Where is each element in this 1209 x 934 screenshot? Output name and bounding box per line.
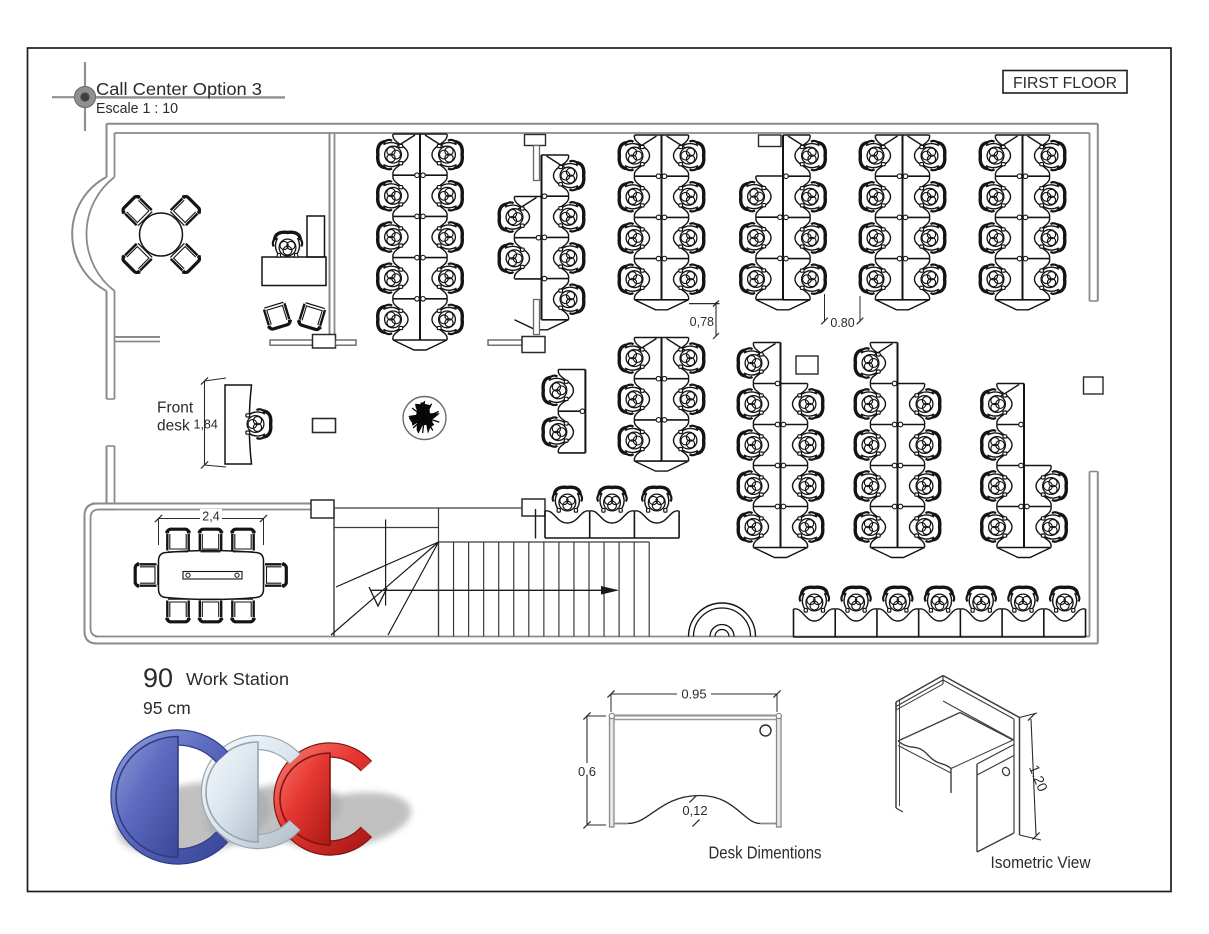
svg-text:0,12: 0,12 [682,803,707,818]
svg-text:95 cm: 95 cm [143,698,191,718]
svg-text:Desk Dimentions: Desk Dimentions [709,843,822,863]
svg-text:0.80: 0.80 [830,316,854,330]
svg-text:Isometric View: Isometric View [991,854,1091,872]
svg-text:Escale 1 : 10: Escale 1 : 10 [96,101,178,117]
svg-text:0,6: 0,6 [578,764,596,779]
svg-text:90: 90 [143,663,173,693]
svg-text:Work Station: Work Station [186,669,289,689]
svg-text:FIRST FLOOR: FIRST FLOOR [1013,75,1117,92]
svg-text:Call Center Option 3: Call Center Option 3 [96,79,262,99]
svg-text:2,4: 2,4 [202,510,219,524]
svg-text:Front: Front [157,400,194,417]
svg-text:desk: desk [157,418,190,435]
svg-text:0.95: 0.95 [681,687,706,702]
svg-text:1,84: 1,84 [194,418,218,432]
svg-text:0,78: 0,78 [690,315,714,329]
